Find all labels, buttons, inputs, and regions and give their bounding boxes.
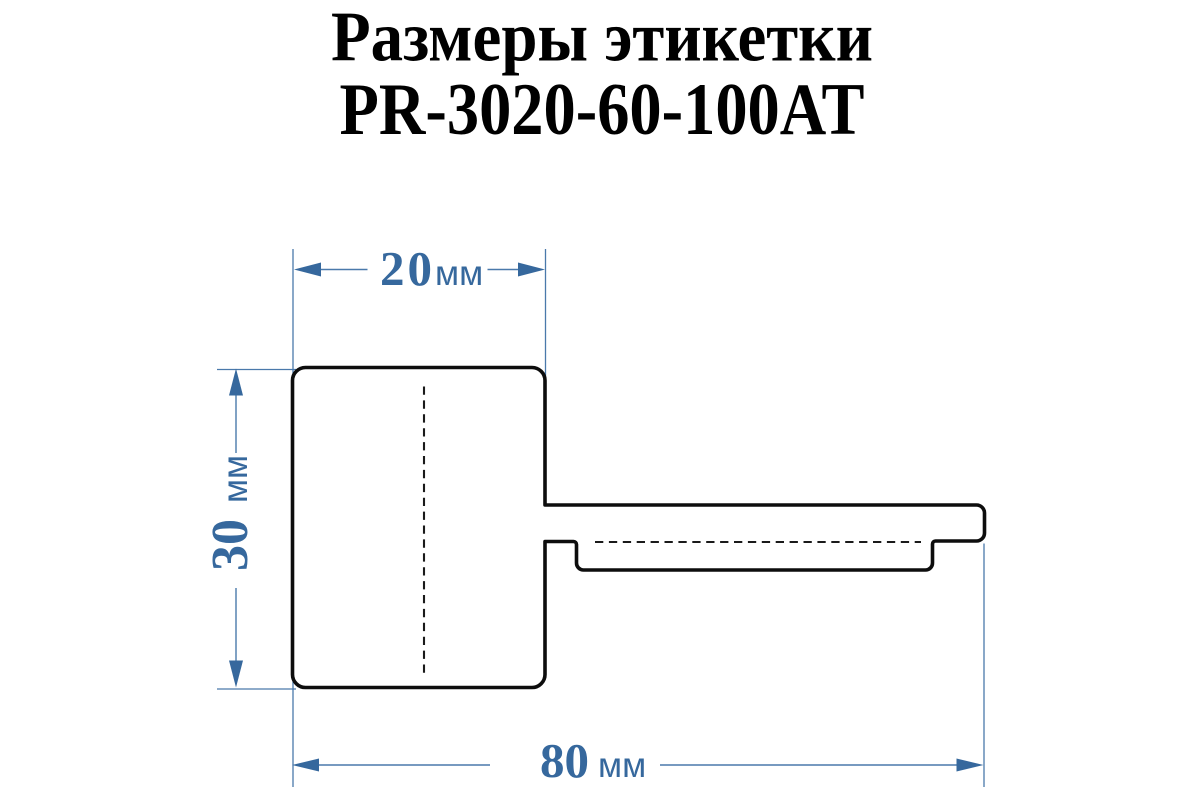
svg-text:Размеры этикетки: Размеры этикетки xyxy=(331,0,873,77)
svg-text:PR-3020-60-100AT: PR-3020-60-100AT xyxy=(340,69,865,151)
svg-text:30: 30 xyxy=(202,519,259,571)
svg-text:80: 80 xyxy=(540,733,589,788)
svg-text:20: 20 xyxy=(380,241,435,296)
svg-text:мм: мм xyxy=(216,455,255,503)
svg-text:мм: мм xyxy=(598,746,646,785)
svg-text:мм: мм xyxy=(435,254,483,293)
